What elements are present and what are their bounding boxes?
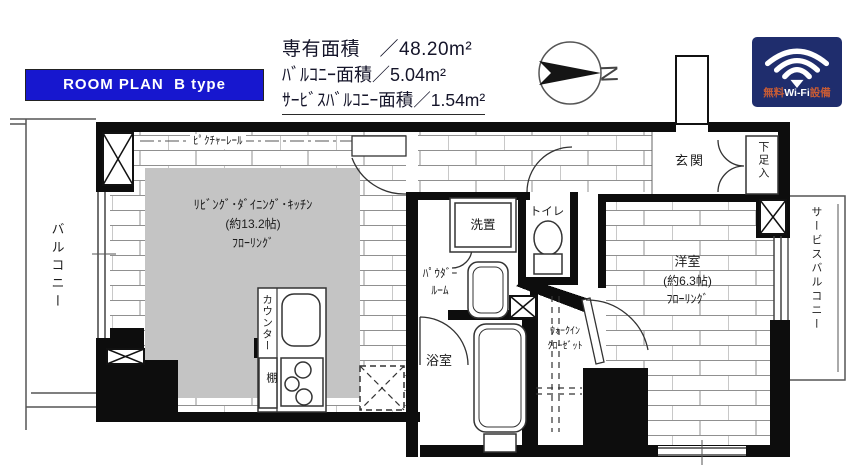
compass-north-letter: N [595,65,623,83]
wifi-badge: 無料Wi-Fi設備 [752,37,842,107]
compass-icon: N [528,34,624,112]
top-wall-left [96,122,676,132]
shoe-storage-label: 下足入 [755,141,770,180]
toilet-right-wall [570,192,578,285]
exclusive-area-line: 専有面積 ／48.20m² [282,34,485,61]
shoe-cabinet-door-arcs [718,140,744,192]
bottom-wall-left [96,412,420,422]
bathtub-inner [479,329,521,427]
powder-line2: ﾙｰﾑ [410,283,470,300]
ldk-size: (約13.2帖) [150,215,356,234]
left-bottom-block [96,328,144,422]
shelf-label: 棚 [263,372,278,383]
right-wall-lower [770,320,790,457]
service-balcony-window [774,236,781,320]
pillar-center [510,296,536,318]
pillar-top-left [103,133,133,185]
fridge-space [360,366,404,410]
area-summary: 専有面積 ／48.20m² ﾊﾞﾙｺﾆｰ面積／5.04m² ｻｰﾋﾞｽﾊﾞﾙｺﾆ… [282,34,485,115]
balcony-label: バルコニー [48,222,66,312]
powder-room-label: ﾊﾟｳﾀﾞｰ ﾙｰﾑ [410,266,470,299]
toilet-label: トイレ [524,205,570,221]
bath-step [484,434,516,452]
wifi-icon [760,39,834,88]
wifi-text-free: 無料 [763,87,784,99]
balcony-area-line: ﾊﾞﾙｺﾆｰ面積／5.04m² [282,61,485,87]
wifi-badge-text: 無料Wi-Fi設備 [763,85,831,100]
pillar-right [760,200,786,234]
wic-hanger-pipes [536,296,582,432]
burner-2 [285,377,299,391]
bath-label: 浴室 [426,352,452,370]
front-door-leaf [676,56,708,124]
floorplan-page: ROOM PLAN B type 専有面積 ／48.20m² ﾊﾞﾙｺﾆｰ面積／… [0,0,848,474]
toilet-bowl [534,221,562,255]
powder-line1: ﾊﾟｳﾀﾞｰ [410,266,470,283]
wic-line1: ｳｫｰｸｲﾝ [532,324,598,339]
pillar-bottom-left [107,349,144,364]
service-balcony-area-line: ｻｰﾋﾞｽﾊﾞﾙｺﾆｰ面積／1.54m² [282,87,485,115]
right-wall-upper [778,122,790,202]
step-block [583,368,648,457]
room-plan-banner: ROOM PLAN B type [25,69,264,101]
hallway-floor [418,132,652,192]
western-room-label: 洋室 (約6.3帖) ﾌﾛｰﾘﾝｸﾞ [615,252,760,308]
entrance-label: 玄関 [660,152,720,170]
western-flooring: ﾌﾛｰﾘﾝｸﾞ [615,290,760,308]
wifi-text-equipped: 設備 [810,87,831,99]
ldk-label: ﾘﾋﾞﾝｸﾞ･ﾀﾞｲﾆﾝｸﾞ･ｷｯﾁﾝ (約13.2帖) ﾌﾛｰﾘﾝｸﾞ [150,196,356,253]
western-left-wall [598,202,606,288]
wic-label: ｳｫｰｸｲﾝ ｸﾛｰｾﾞｯﾄ [532,324,598,354]
ldk-door-leaf [352,136,406,156]
burner-1 [295,362,311,378]
wic-line2: ｸﾛｰｾﾞｯﾄ [532,339,598,354]
service-balcony-label: サービスバルコニー [808,206,823,332]
counter-label: カウンター [260,294,274,352]
washbasin-inner [473,267,503,313]
burner-3 [296,389,312,405]
ldk-doorway-gap [406,134,418,192]
western-name: 洋室 [615,252,760,272]
wifi-text-wifi: Wi-Fi [784,87,810,99]
ldk-name: ﾘﾋﾞﾝｸﾞ･ﾀﾞｲﾆﾝｸﾞ･ｷｯﾁﾝ [150,196,356,215]
western-size: (約6.3帖) [615,272,760,290]
shelf-box [259,358,277,408]
kitchen-sink [282,294,320,346]
ldk-flooring: ﾌﾛｰﾘﾝｸﾞ [150,234,356,253]
picture-rail-label: ﾋﾟｸﾁｬｰﾚｰﾙ [190,134,246,149]
washer-label: 洗置 [452,217,514,234]
wet-area-left-wall [406,192,418,457]
toilet-tank [534,254,562,274]
top-wall-right [708,122,780,132]
